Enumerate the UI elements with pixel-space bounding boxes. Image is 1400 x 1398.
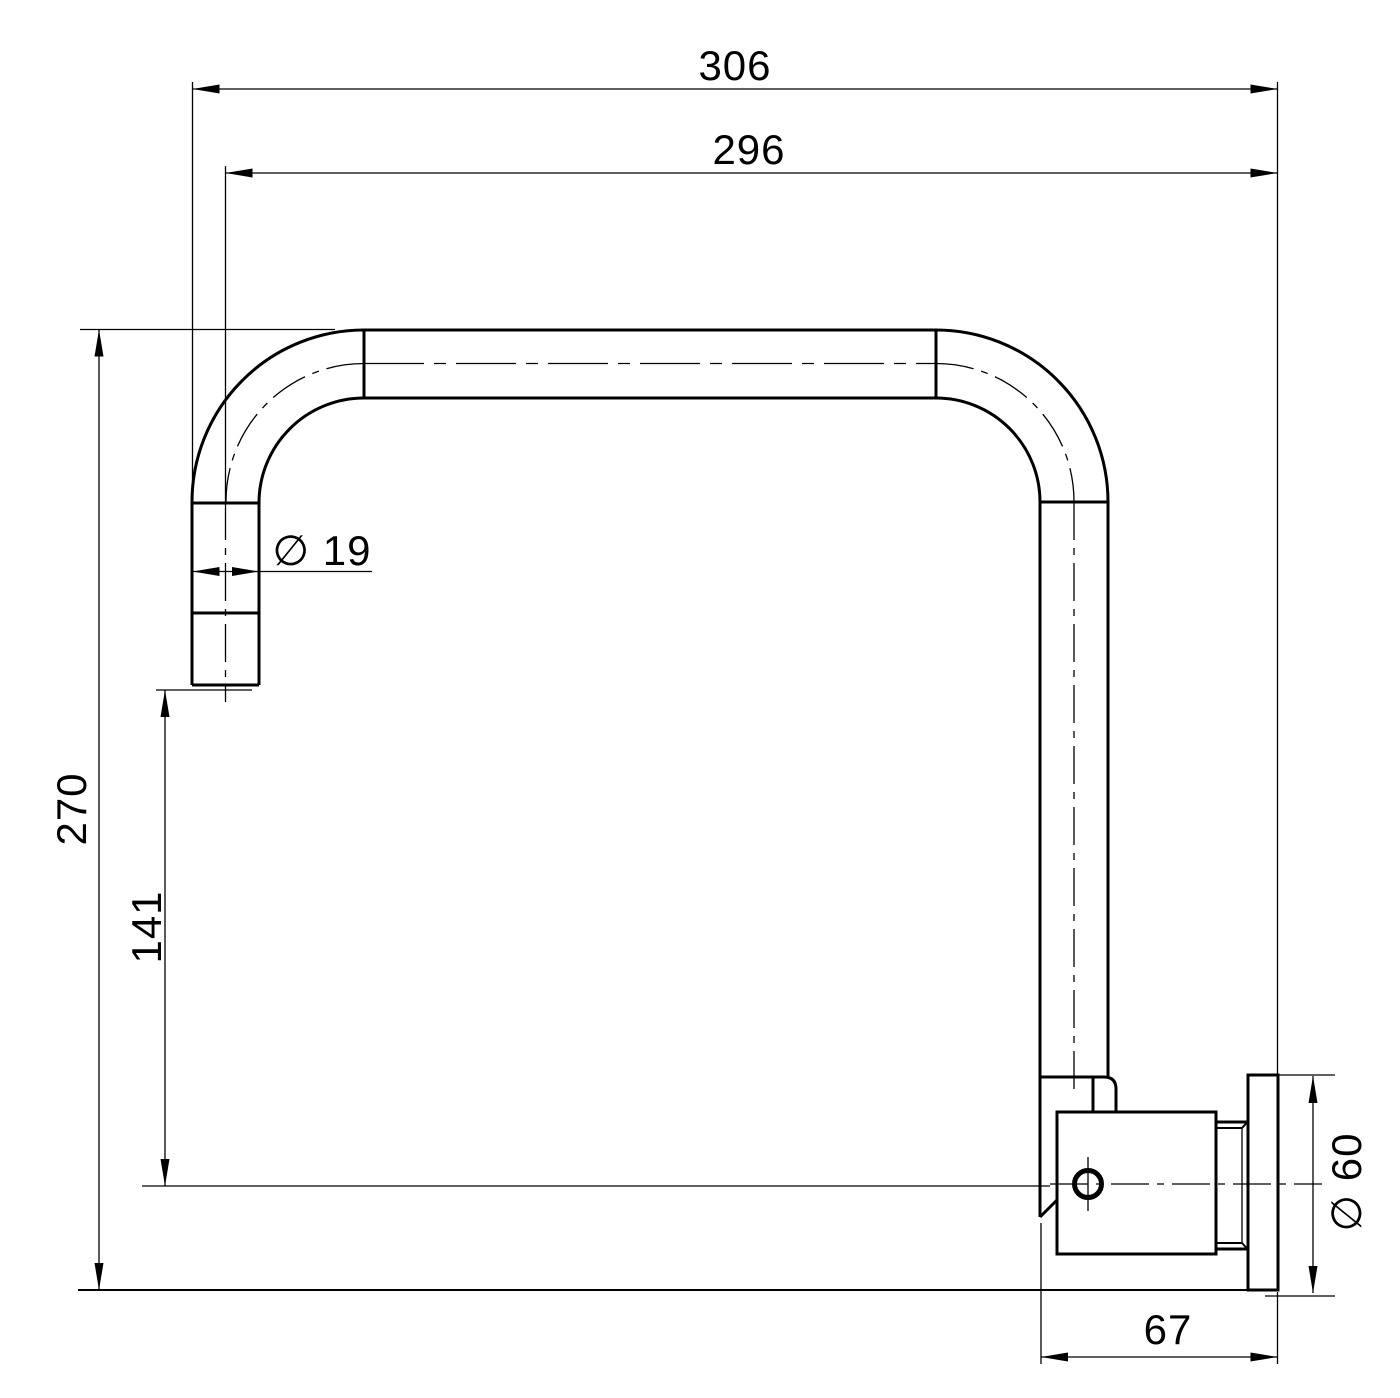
dimension-overall-height: 270	[48, 330, 104, 1291]
dimension-centerline-width: 296	[226, 126, 1278, 178]
arrowhead-right	[232, 567, 259, 576]
dim-19-label: ∅ 19	[273, 527, 372, 574]
dimension-wall-projection: 67	[1041, 1306, 1278, 1362]
arrowhead-left	[193, 567, 220, 576]
dim-67-label: 67	[1144, 1306, 1193, 1353]
drawing-svg: 306 296 270 141 ∅ 19 ∅ 60	[0, 0, 1400, 1398]
dimension-overall-width: 306	[193, 42, 1278, 94]
arrowhead-right	[1251, 1353, 1278, 1362]
extension-lines	[80, 82, 1335, 1364]
wall-flange	[1248, 1075, 1278, 1290]
dim-141-label: 141	[123, 890, 170, 963]
dim-270-label: 270	[48, 772, 95, 845]
dim-306-label: 306	[698, 42, 771, 89]
arrowhead-left	[1041, 1353, 1068, 1362]
arrowhead-top	[161, 690, 170, 717]
arrowhead-top	[95, 330, 104, 357]
threaded-connector	[1216, 1122, 1248, 1249]
arrowhead-bottom	[95, 1263, 104, 1290]
dimension-spout-diameter: ∅ 19	[193, 527, 373, 576]
arrowhead-right	[1251, 85, 1278, 94]
dimension-outlet-height: 141	[123, 690, 170, 1186]
arrowhead-left	[226, 169, 253, 178]
centerlines	[226, 364, 1323, 1185]
arrowhead-bottom	[161, 1159, 170, 1186]
dim-296-label: 296	[712, 126, 785, 173]
dim-60-label: ∅ 60	[1323, 1133, 1370, 1232]
wall-bracket	[78, 1075, 1278, 1290]
technical-drawing: 306 296 270 141 ∅ 19 ∅ 60	[0, 0, 1400, 1398]
arrowhead-left	[193, 85, 220, 94]
valve-body	[1057, 1112, 1216, 1254]
arrowhead-right	[1251, 169, 1278, 178]
arrowhead-top	[1309, 1076, 1318, 1103]
spout-pipe-outline	[192, 330, 1108, 1217]
arrowhead-bottom	[1309, 1266, 1318, 1293]
